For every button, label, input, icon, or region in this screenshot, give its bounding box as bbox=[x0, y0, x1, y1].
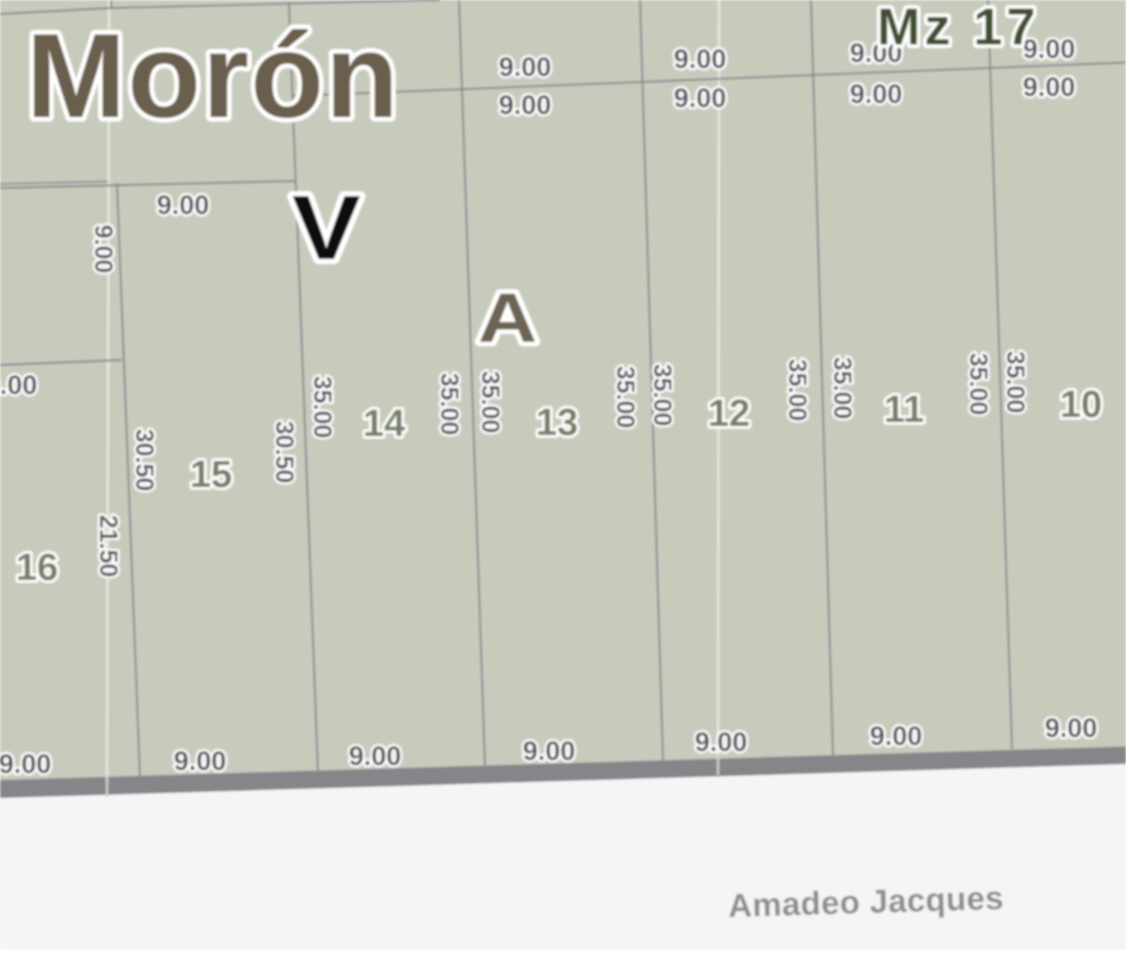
svg-text:9.00: 9.00 bbox=[0, 370, 37, 400]
svg-text:35.00: 35.00 bbox=[1001, 351, 1029, 414]
svg-text:35.00: 35.00 bbox=[308, 376, 336, 439]
svg-text:9.00: 9.00 bbox=[349, 741, 402, 771]
svg-text:9.00: 9.00 bbox=[174, 746, 227, 776]
svg-text:35.00: 35.00 bbox=[964, 353, 992, 416]
svg-text:Mz 17: Mz 17 bbox=[877, 0, 1040, 57]
svg-text:Morón: Morón bbox=[26, 9, 400, 143]
svg-text:9.00: 9.00 bbox=[499, 90, 552, 120]
svg-text:9.00: 9.00 bbox=[1045, 713, 1098, 743]
svg-text:35.00: 35.00 bbox=[435, 373, 463, 436]
svg-text:9.00: 9.00 bbox=[674, 83, 727, 113]
svg-text:35.00: 35.00 bbox=[648, 364, 676, 427]
svg-text:9.00: 9.00 bbox=[499, 52, 552, 82]
svg-text:30.50: 30.50 bbox=[130, 429, 158, 492]
svg-text:9.00: 9.00 bbox=[1023, 72, 1076, 102]
svg-text:13: 13 bbox=[536, 402, 578, 444]
svg-text:9.00: 9.00 bbox=[870, 721, 923, 751]
svg-text:9.00: 9.00 bbox=[674, 44, 727, 74]
svg-text:35.00: 35.00 bbox=[476, 371, 504, 434]
svg-text:11: 11 bbox=[884, 389, 924, 431]
svg-text:35.00: 35.00 bbox=[828, 357, 856, 420]
svg-text:V: V bbox=[292, 177, 361, 279]
svg-text:9.00: 9.00 bbox=[89, 225, 117, 274]
svg-text:35.00: 35.00 bbox=[783, 359, 811, 422]
svg-text:21.50: 21.50 bbox=[94, 515, 122, 578]
svg-text:12: 12 bbox=[708, 393, 750, 435]
svg-text:35.00: 35.00 bbox=[611, 366, 639, 429]
svg-text:15: 15 bbox=[190, 454, 232, 496]
svg-text:14: 14 bbox=[363, 403, 405, 445]
svg-text:10: 10 bbox=[1060, 384, 1102, 426]
svg-text:16: 16 bbox=[16, 547, 58, 589]
svg-text:9.00: 9.00 bbox=[157, 190, 210, 220]
svg-text:9.00: 9.00 bbox=[850, 79, 903, 109]
svg-text:30.50: 30.50 bbox=[270, 421, 298, 484]
svg-text:A: A bbox=[478, 280, 537, 358]
svg-text:9.00: 9.00 bbox=[523, 736, 576, 766]
svg-text:9.00: 9.00 bbox=[0, 749, 51, 779]
svg-text:9.00: 9.00 bbox=[695, 727, 748, 757]
